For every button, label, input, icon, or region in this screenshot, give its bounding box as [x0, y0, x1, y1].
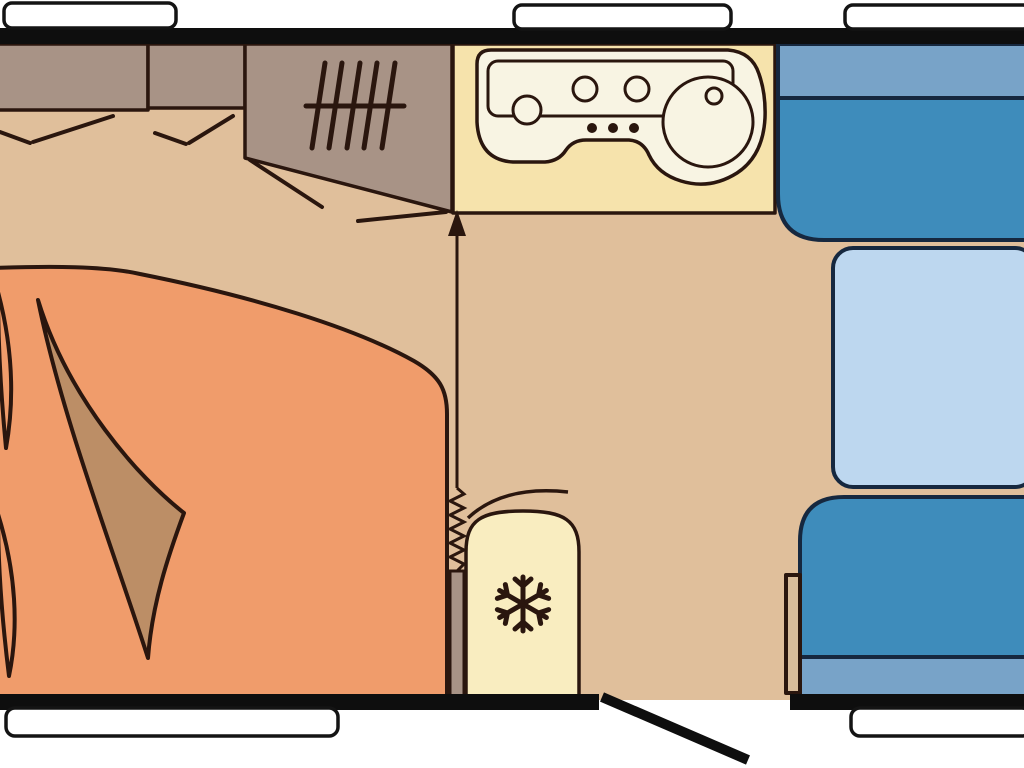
burner-large	[513, 96, 541, 124]
kitchen	[453, 44, 775, 213]
window-rear-left	[6, 708, 338, 736]
window-front-right	[845, 5, 1024, 29]
dinette-seat-bottom-backrest	[800, 657, 1024, 698]
burner-small-1	[573, 77, 597, 101]
caravan-floorplan	[0, 0, 1024, 768]
hob-knob-1	[587, 123, 597, 133]
floorplan-canvas	[0, 0, 1024, 768]
overhead-cabinet-center	[148, 44, 245, 108]
dinette-seat-top-backrest	[778, 44, 1024, 98]
seat-side-panel	[786, 575, 800, 693]
sink-drain	[706, 88, 722, 104]
burner-small-2	[625, 77, 649, 101]
window-front-left	[4, 3, 176, 28]
refrigerator	[466, 511, 579, 700]
partition-wall-strip	[450, 571, 464, 698]
window-front-center	[514, 5, 731, 29]
dinette-table	[833, 248, 1024, 487]
hob-knob-3	[629, 123, 639, 133]
window-rear-right	[851, 708, 1024, 736]
hob-knob-2	[608, 123, 618, 133]
overhead-cabinet-left	[0, 44, 148, 110]
